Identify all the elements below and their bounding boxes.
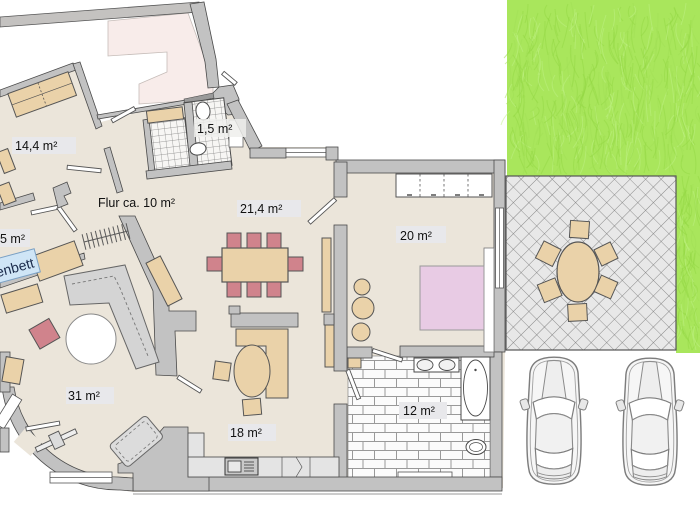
svg-text:12 m²: 12 m²: [403, 404, 435, 418]
svg-text:14,4 m²: 14,4 m²: [15, 139, 57, 153]
svg-text:20 m²: 20 m²: [400, 229, 432, 243]
svg-text:5 m²: 5 m²: [0, 232, 25, 246]
svg-text:31 m²: 31 m²: [68, 389, 100, 403]
svg-text:1,5 m²: 1,5 m²: [197, 122, 232, 136]
svg-text:18 m²: 18 m²: [230, 426, 262, 440]
svg-text:Flur ca. 10 m²: Flur ca. 10 m²: [98, 196, 175, 210]
svg-text:21,4 m²: 21,4 m²: [240, 202, 282, 216]
